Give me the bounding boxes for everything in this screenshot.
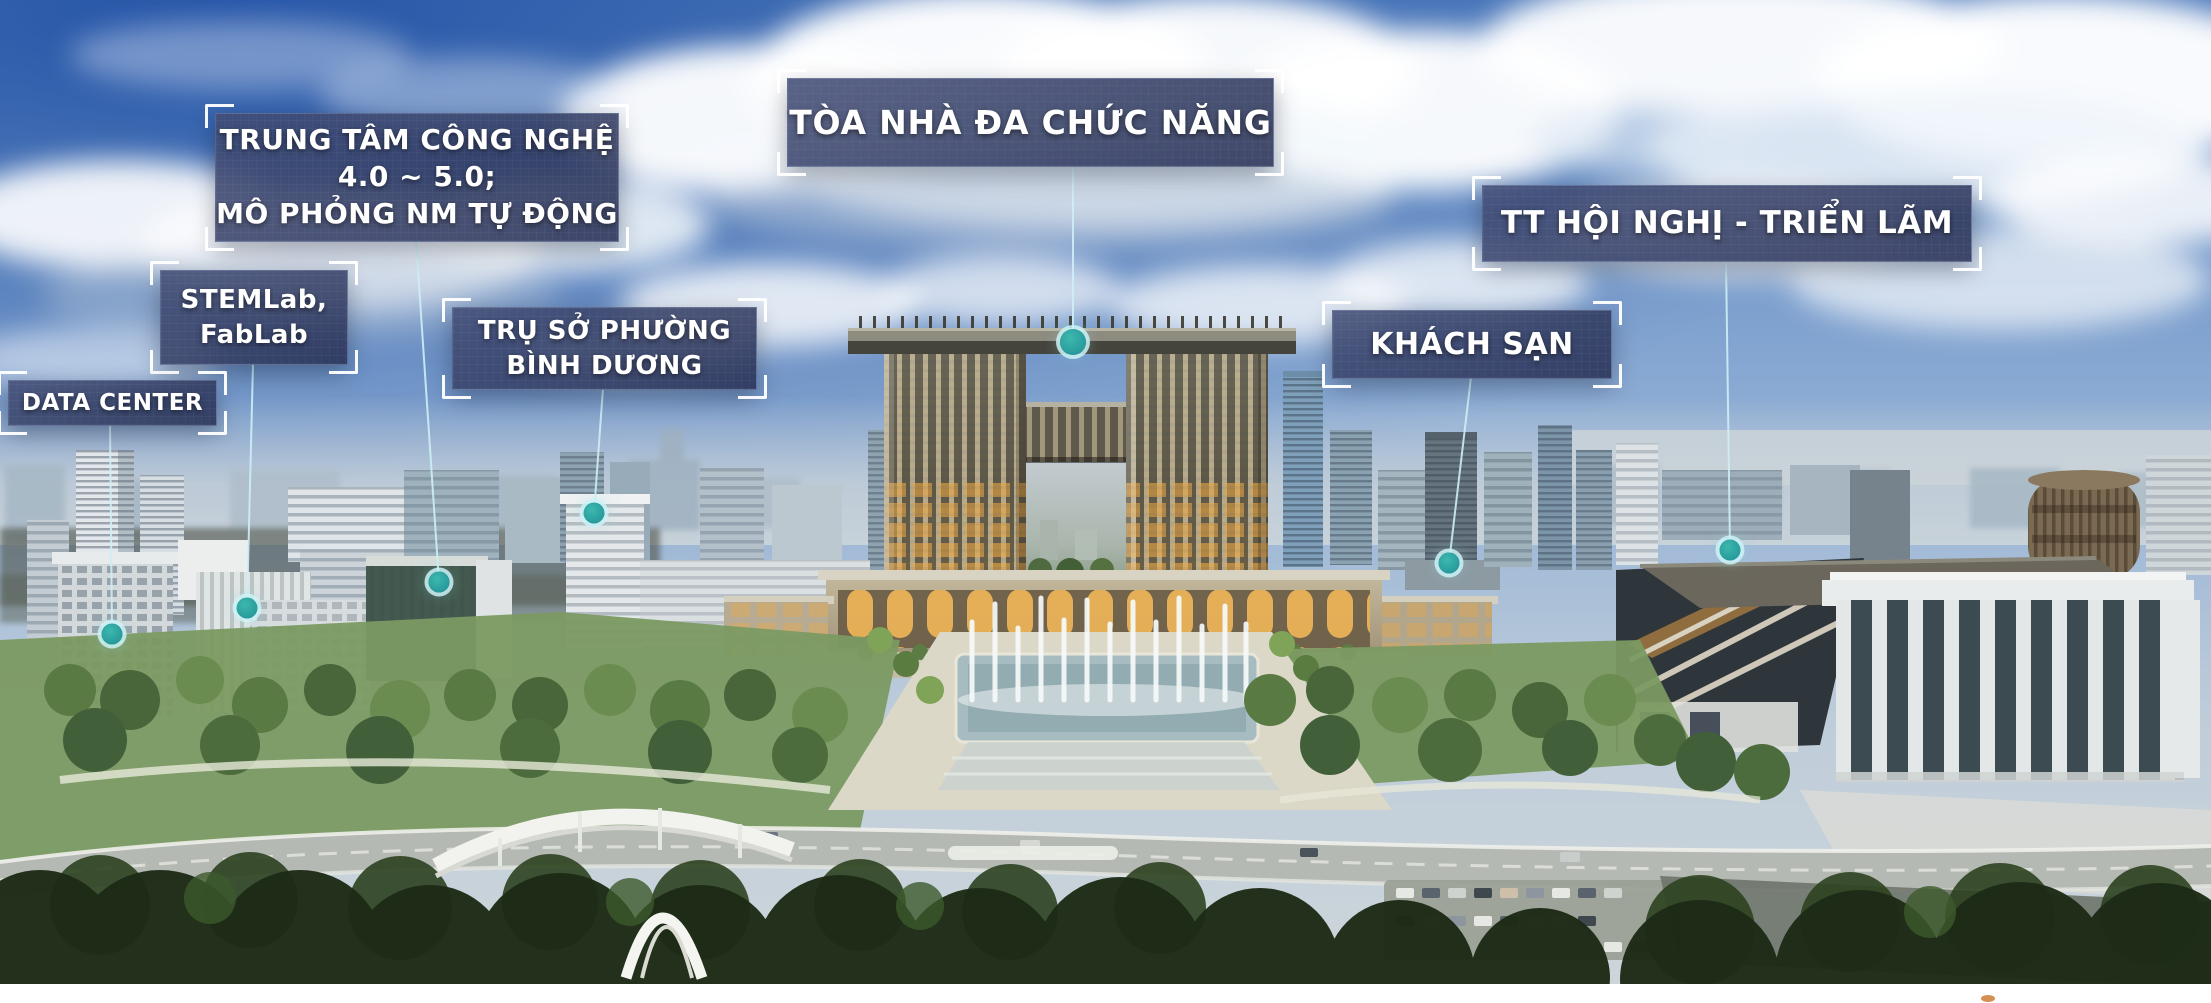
corner-bracket-icon bbox=[0, 411, 27, 435]
corner-bracket-icon bbox=[150, 350, 179, 374]
corner-bracket-icon bbox=[198, 371, 227, 395]
callout-trung-tam-cong-nghe: TRUNG TÂM CÔNG NGHỆ 4.0 ~ 5.0; MÔ PHỎNG … bbox=[215, 113, 619, 242]
location-marker-tru-so-phuong bbox=[584, 503, 605, 524]
corner-bracket-icon bbox=[1953, 176, 1982, 200]
corner-bracket-icon bbox=[738, 375, 767, 399]
corner-bracket-icon bbox=[600, 227, 629, 251]
location-marker-data-center bbox=[102, 624, 123, 645]
screenshot-frame: TRUNG TÂM CÔNG NGHỆ 4.0 ~ 5.0; MÔ PHỎNG … bbox=[0, 0, 2211, 1003]
callout-label-line: TÒA NHÀ ĐA CHỨC NĂNG bbox=[789, 101, 1272, 145]
location-marker-toa-nha-da-chuc-nang bbox=[1060, 329, 1086, 355]
corner-bracket-icon bbox=[1255, 69, 1284, 93]
callout-label-line: TT HỘI NGHỊ - TRIỂN LÃM bbox=[1501, 203, 1953, 244]
callout-label-line: TRUNG TÂM CÔNG NGHỆ bbox=[220, 122, 615, 159]
bottom-white-bar bbox=[0, 984, 2211, 1003]
callout-toa-nha-da-chuc-nang: TÒA NHÀ ĐA CHỨC NĂNG bbox=[787, 78, 1274, 167]
corner-bracket-icon bbox=[198, 411, 227, 435]
callout-khach-san: KHÁCH SẠN bbox=[1332, 310, 1612, 379]
corner-bracket-icon bbox=[205, 227, 234, 251]
callout-label-line: FabLab bbox=[200, 318, 308, 352]
corner-bracket-icon bbox=[442, 298, 471, 322]
callout-tt-hoi-nghi-trien-lam: TT HỘI NGHỊ - TRIỂN LÃM bbox=[1482, 185, 1972, 262]
corner-bracket-icon bbox=[150, 261, 179, 285]
callout-label-line: 4.0 ~ 5.0; bbox=[338, 159, 496, 196]
corner-bracket-icon bbox=[1255, 152, 1284, 176]
callout-label-line: KHÁCH SẠN bbox=[1370, 325, 1574, 365]
corner-bracket-icon bbox=[442, 375, 471, 399]
corner-bracket-icon bbox=[600, 104, 629, 128]
partial-logo-mark bbox=[1981, 995, 1995, 1002]
corner-bracket-icon bbox=[777, 152, 806, 176]
corner-bracket-icon bbox=[1953, 247, 1982, 271]
callout-label-line: MÔ PHỎNG NM TỰ ĐỘNG bbox=[216, 196, 618, 233]
corner-bracket-icon bbox=[1322, 364, 1351, 388]
callout-stemlab-fablab: STEMLab, FabLab bbox=[160, 270, 348, 365]
corner-bracket-icon bbox=[777, 69, 806, 93]
callout-label-line: STEMLab, bbox=[181, 283, 328, 317]
corner-bracket-icon bbox=[329, 350, 358, 374]
location-marker-stemlab bbox=[237, 598, 258, 619]
corner-bracket-icon bbox=[329, 261, 358, 285]
corner-bracket-icon bbox=[0, 371, 27, 395]
corner-bracket-icon bbox=[1593, 364, 1622, 388]
location-marker-tt-hoi-nghi bbox=[1720, 540, 1741, 561]
location-marker-trung-tam-cong-nghe bbox=[429, 572, 450, 593]
corner-bracket-icon bbox=[1472, 247, 1501, 271]
callout-label-line: DATA CENTER bbox=[22, 388, 203, 418]
callout-label-line: TRỤ SỞ PHƯỜNG bbox=[478, 314, 731, 348]
location-marker-khach-san bbox=[1439, 553, 1460, 574]
corner-bracket-icon bbox=[738, 298, 767, 322]
corner-bracket-icon bbox=[205, 104, 234, 128]
corner-bracket-icon bbox=[1593, 301, 1622, 325]
callout-tru-so-phuong-binh-duong: TRỤ SỞ PHƯỜNG BÌNH DƯƠNG bbox=[452, 307, 757, 390]
callout-data-center: DATA CENTER bbox=[8, 380, 217, 426]
callout-label-line: BÌNH DƯƠNG bbox=[506, 349, 702, 383]
corner-bracket-icon bbox=[1322, 301, 1351, 325]
corner-bracket-icon bbox=[1472, 176, 1501, 200]
